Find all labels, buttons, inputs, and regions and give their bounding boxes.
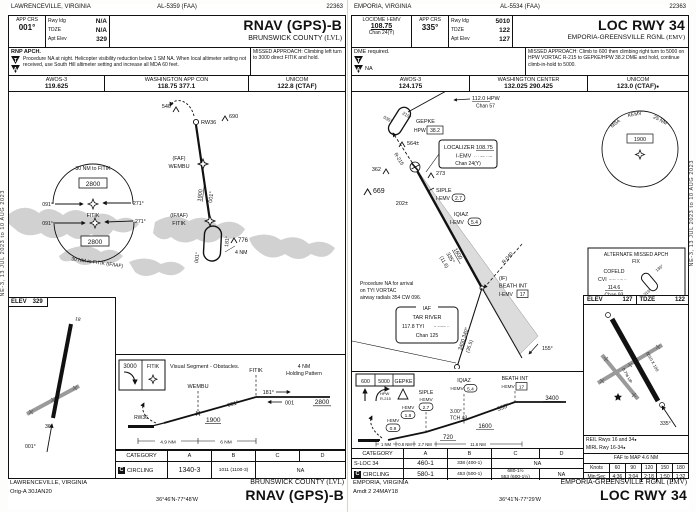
- profile-1600: 1600: [478, 424, 492, 430]
- wembu-waypoint-icon: [198, 159, 208, 169]
- circling-label: CIRCLING: [127, 468, 153, 474]
- tar-river-name: TAR RIVER: [413, 315, 442, 321]
- runway-data-box: Rwy ldg5010 TDZE122 Apt Elev127: [449, 16, 513, 47]
- msa-label-2: KEMV: [627, 110, 643, 118]
- footer-amendment: Orig-A 30JAN20: [10, 489, 52, 495]
- beath-name: BEATH INT: [499, 284, 528, 290]
- glideslope-angle: 3.00°: [450, 409, 462, 415]
- footer-title: RNAV (GPS)-B: [245, 487, 344, 503]
- al-number: AL-5534 (FAA): [465, 4, 576, 13]
- airport-name: BRUNSWICK COUNTY: [248, 35, 322, 42]
- footer-title: LOC RWY 34: [600, 487, 687, 503]
- center-freq: 132.025 290.425: [470, 83, 587, 90]
- appcon-freq: 118.75 377.1: [105, 83, 248, 90]
- briefing-strip: APP CRS 001° Rwy ldgN/A TDZEN/A Apt Elev…: [8, 15, 346, 95]
- feeder-course: [457, 288, 482, 367]
- svg-text:A: A: [357, 67, 361, 73]
- beath-if-tag: (IF): [499, 276, 507, 282]
- cvi-ident: CVI: [598, 277, 607, 283]
- tar-river-fix-icon: [455, 365, 460, 370]
- profile-beath-dme: 17: [519, 385, 525, 391]
- airport-sketch: ELEV 329 18 36 001°: [8, 297, 116, 479]
- taa-top-waypoint-icon: [88, 199, 98, 209]
- tdze-label: TDZE: [48, 26, 61, 35]
- if-iaf-tag: (IF/IAF): [170, 213, 188, 219]
- msa-altitude: 1900: [634, 137, 646, 143]
- profile-siple: SIPLE: [419, 390, 434, 396]
- msa-waypoint-icon: [636, 150, 645, 159]
- profile-siple-dme: 2.7: [423, 405, 430, 411]
- app-crs-value: 335°: [414, 23, 446, 32]
- missed-approach-text: MISSED APPROACH: Climb to 600 then climb…: [526, 48, 688, 75]
- gepke-name: GEPKE: [416, 119, 435, 125]
- reil-note: REIL Rwys 16 and 34: [586, 437, 634, 443]
- profile-hold-inbound: 001: [285, 401, 294, 407]
- knots-60: 60: [610, 464, 626, 473]
- rwy-ldg-label: Rwy ldg: [48, 17, 66, 26]
- outbound-course: 155°: [542, 346, 553, 352]
- apt-elev-value: 329: [96, 35, 107, 44]
- fix-09-dme: 0.9: [390, 426, 397, 432]
- final-approach-course: [196, 125, 210, 221]
- unicom-freq: 122.8 (CTAF): [249, 83, 345, 90]
- footer-airport-id: (EMV): [667, 478, 687, 486]
- minima-category-header: CATEGORY: [116, 451, 168, 461]
- missed-step-2: 5000: [378, 379, 390, 385]
- dist-4: 11.6 NM: [470, 442, 486, 447]
- feeder-labels: 3400 340° (35.5): [457, 327, 478, 354]
- hpw-chan: Chan 57: [476, 104, 495, 110]
- loc-freq: 108.75: [354, 23, 409, 30]
- edition-note-left: NE-3, 13 JUL 2023 to 10 AUG 2023: [0, 190, 6, 296]
- profile-missed-curve: [371, 416, 382, 438]
- runway-18-36: [53, 324, 71, 418]
- distance-if-faf: 6 NM: [220, 440, 231, 446]
- obstacle-776: 776: [238, 238, 249, 244]
- r215-label: R-215: [392, 152, 404, 167]
- profile-beath: BEATH INT: [502, 376, 530, 382]
- knots-label: Knots: [584, 464, 610, 473]
- loc-dme-box: LOC/DME I-EMV 108.75 Chan 24(Y): [352, 16, 412, 47]
- taa-bottom-bearing-left: 091°: [42, 221, 53, 227]
- profile-view: 600 5000 GEPKE HPW R-215 SIPLE I-EMV 2.7…: [351, 371, 584, 449]
- elev-label: ELEV: [11, 299, 27, 305]
- tdze-value: 122: [499, 26, 510, 35]
- msa-label-1: MSA: [610, 118, 623, 130]
- minima-cat-d: D: [300, 451, 345, 461]
- faf-to-map: FAF to MAP 4.6 NM: [584, 454, 688, 464]
- approach-plate-page: NE-3, 13 JUL 2023 to 10 AUG 2023 NE-3, 1…: [0, 0, 696, 512]
- profile-course: 335°: [497, 403, 511, 413]
- beacon-icon: [614, 393, 622, 401]
- cofeld-name: COFELD: [603, 269, 624, 275]
- title-block: RNAV (GPS)-B BRUNSWICK COUNTY (LVL): [110, 16, 345, 47]
- tyi-chan: Chan 125: [416, 333, 439, 339]
- elev-value: 127: [622, 297, 632, 303]
- tyi-morse: − −·−− ··: [434, 324, 450, 329]
- app-crs-box: APP CRS 001°: [9, 16, 46, 47]
- chart-loc-rwy-34: EMPORIA, VIRGINIA AL-5534 (FAA) 22363 LO…: [351, 4, 689, 510]
- procedure-title: RNAV (GPS)-B: [110, 17, 342, 33]
- sloc-hat: 338 (400-1): [448, 459, 492, 468]
- profile-iqiaz-dme: 5.4: [467, 387, 474, 393]
- obstacle-362-icon: [383, 169, 389, 174]
- sketch-final-course: 001°: [25, 444, 36, 450]
- localizer-chan: Chan 24(Y): [455, 161, 481, 167]
- arrival-note-1: Procedure NA for arrival: [360, 281, 413, 287]
- footer-airport-id: (LVL): [326, 478, 344, 486]
- tdze-value: N/A: [96, 26, 107, 35]
- tdze-label: TDZE: [451, 26, 464, 35]
- tch-value: TCH 43: [450, 416, 467, 422]
- circling-label: CIRCLING: [363, 472, 389, 478]
- sketch-final-course: 335°: [660, 421, 671, 427]
- rwy-ldg-value: N/A: [96, 17, 107, 26]
- awos-freq: 119.625: [9, 83, 104, 90]
- minima-cat-b: B: [448, 449, 492, 458]
- footer-amendment: Amdt 2 24MAY18: [353, 489, 398, 495]
- obstacle-540-icon: [173, 107, 179, 112]
- alternate-minimums-icon: A: [11, 65, 20, 73]
- title-block: LOC RWY 34 EMPORIA-GREENSVILLE RGNL (EMV…: [513, 16, 688, 47]
- apt-elev-label: Apt Elev: [451, 35, 470, 44]
- dme-required-note: DME required.: [354, 49, 523, 55]
- obstacle-273: 273: [436, 171, 445, 177]
- footer-city: EMPORIA, VIRGINIA: [353, 480, 408, 486]
- profile-iqiaz: IQIAZ: [457, 378, 471, 384]
- circling-cd: NA: [256, 462, 345, 479]
- obstacle-690-icon: [222, 116, 228, 121]
- rw36-label: RW36: [201, 120, 216, 126]
- tdze-value: 122: [675, 297, 685, 303]
- tdze-label: TDZE: [640, 297, 656, 303]
- hpw-freq: 112.0 HPW: [472, 96, 501, 102]
- taa-top-bearing-left: 091°: [42, 202, 53, 208]
- hold-outbound-course: 181°: [224, 236, 231, 247]
- siple-name: SIPLE: [436, 188, 452, 194]
- iaf-tag: IAF: [423, 306, 431, 312]
- loc-chan: Chan 24(Y): [354, 30, 409, 36]
- profile-720: 720: [443, 435, 454, 441]
- airport-id: (LVL): [324, 34, 342, 42]
- chart-code: 22363: [232, 4, 343, 13]
- cvi-freq: 114.6: [608, 285, 621, 291]
- airport-name: EMPORIA-GREENSVILLE RGNL: [567, 34, 664, 41]
- chart-city: EMPORIA, VIRGINIA: [354, 4, 465, 13]
- chart-rnav-gps-b: LAWRENCEVILLE, VIRGINIA AL-5359 (FAA) 22…: [8, 4, 346, 510]
- alternate-minimums-icon: A: [354, 65, 363, 73]
- profile-wembu-label: WEMBU: [187, 384, 208, 390]
- page-divider: [347, 0, 348, 512]
- elev-label: ELEV: [587, 297, 603, 303]
- minima-cat-b: B: [212, 451, 256, 461]
- circling-hat-ab: 1011 (1100-3): [212, 462, 256, 479]
- descent-line-2: [426, 420, 465, 432]
- apt-elev-value: 127: [499, 35, 510, 44]
- sketch-graphics: 5010 X 100 0.7% UP 335°: [584, 305, 687, 431]
- fix-18-id: I-EMV: [402, 405, 415, 410]
- missed-left-turn-icon: [124, 372, 135, 384]
- lighting-timing-box: REIL Rwys 16 and 34● MIRL Rwy 16-34● FAF…: [583, 435, 689, 479]
- missed-step-1: 600: [361, 379, 370, 385]
- beath-dme: 17: [520, 292, 526, 298]
- knots-150: 150: [657, 464, 673, 473]
- obstacle-669-icon: [364, 189, 371, 195]
- chart-city: LAWRENCEVILLE, VIRGINIA: [11, 4, 122, 13]
- notes-box: RNP APCH. T A Procedure NA at night. Hel…: [9, 48, 251, 75]
- chart-top-line: EMPORIA, VIRGINIA AL-5534 (FAA) 22363: [351, 4, 689, 13]
- obstacle-776-icon: [231, 238, 237, 243]
- profile-hold-altitude: 2800: [315, 399, 330, 406]
- reil-pcl-icon: ●: [634, 437, 636, 442]
- hold-length-note: 4 NM: [298, 364, 310, 370]
- airport-id: (EMV): [666, 34, 685, 41]
- obstacle-564: 564±: [407, 141, 419, 147]
- missed-radial: R-215: [380, 396, 392, 401]
- hold-pattern-note: Holding Pattern: [286, 371, 322, 377]
- obstacle-362: 362: [372, 167, 381, 173]
- runway-data-box: Rwy ldgN/A TDZEN/A Apt Elev329: [46, 16, 110, 47]
- takeoff-minimums-icon: T: [11, 56, 20, 64]
- sketch-graphics: 18 36 001°: [9, 298, 114, 476]
- elev-value: 329: [33, 299, 43, 305]
- profile-siple-id: I-EMV: [419, 397, 433, 403]
- profile-runway: [358, 439, 380, 442]
- takeoff-minimums-icon: T: [354, 56, 363, 64]
- missed-fix-name: FITIK: [147, 364, 160, 370]
- alternate-na: NA: [365, 66, 373, 72]
- taa-fix-name: FITIK: [87, 213, 100, 219]
- iqiaz-name: IQIAZ: [454, 212, 469, 218]
- runway-18-label: 18: [75, 316, 82, 323]
- localizer-course: [415, 167, 482, 288]
- minima-cat-d: D: [540, 449, 583, 458]
- localizer-morse: ·· · −− ···−: [474, 154, 493, 159]
- circling-row-label: C CIRCLING: [116, 462, 168, 479]
- mirl-pcl-icon: ●: [623, 445, 625, 450]
- iqiaz-dme: 5.4: [471, 220, 478, 226]
- knots-90: 90: [626, 464, 642, 473]
- app-crs-box: APP CRS 335°: [412, 16, 449, 47]
- airport-sketch: ELEV127 TDZE122 5010 X 100 0.7% UP 335°: [583, 295, 689, 436]
- profile-graphics: 600 5000 GEPKE HPW R-215 SIPLE I-EMV 2.7…: [352, 372, 582, 447]
- circling-icon: C: [354, 471, 361, 478]
- hold-inbound-course: 001°: [194, 252, 201, 263]
- taa-bottom-bearing-right: 271°: [135, 219, 146, 225]
- profile-altitude-1900: 1900: [206, 417, 221, 424]
- amaf-title-2: FIX: [632, 259, 640, 265]
- gepke-vor: HPW: [414, 128, 426, 134]
- cvi-morse: −·−· ···− ··: [609, 278, 627, 282]
- sloc-cd: NA: [492, 459, 583, 468]
- profile-hold-outbound: 181°: [263, 390, 274, 396]
- dist-1: 1 NM: [381, 442, 392, 447]
- rw36-fix-icon: [193, 119, 198, 124]
- profile-runway: [128, 425, 154, 428]
- visual-segment-note: Visual Segment - Obstacles.: [170, 364, 240, 370]
- rwy-ldg-value: 5010: [496, 17, 510, 26]
- minima-cat-a: A: [168, 451, 212, 461]
- minima-category-header: CATEGORY: [352, 449, 404, 458]
- circling-mda-ab: 1340-3: [168, 462, 212, 479]
- localizer-label: LOCALIZER: [444, 145, 475, 151]
- chart-footer: LAWRENCEVILLE, VIRGINIA Orig-A 30JAN20 3…: [8, 478, 346, 508]
- missed-fix-icon: [149, 375, 157, 383]
- apt-elev-label: Apt Elev: [48, 35, 67, 44]
- fix-09-id: I-EMV: [387, 418, 400, 423]
- minima-cat-c: C: [256, 451, 300, 461]
- airport-symbol: [410, 162, 420, 172]
- runway-dimensions: 5010 X 100: [645, 351, 660, 373]
- obstacle-540: 540: [162, 104, 171, 110]
- arrival-note-2: on TYI VORTAC: [360, 288, 397, 294]
- chart-code: 22363: [575, 4, 686, 13]
- dist-2: 0.8 NM: [398, 442, 412, 447]
- r040-label: R-040: [501, 251, 515, 265]
- segment-course: 001°: [208, 191, 215, 203]
- minima-table: CATEGORY A B C D S-LOC 34 460-1 338 (400…: [351, 448, 584, 479]
- sketch-elev-tag: ELEV 329: [9, 298, 48, 307]
- procedure-title: LOC RWY 34: [513, 17, 685, 33]
- taa-top-bearing-right: 271°: [133, 201, 144, 207]
- taa-bottom-altitude: 2800: [88, 239, 103, 246]
- notes-box: DME required. T A NA: [352, 48, 526, 75]
- briefing-strip: LOC/DME I-EMV 108.75 Chan 24(Y) APP CRS …: [351, 15, 689, 95]
- arrival-note-3: airway radials 354 CW 096.: [360, 295, 421, 301]
- sloc-row-label: S-LOC 34: [352, 459, 404, 468]
- sketch-header: ELEV127 TDZE122: [584, 296, 688, 305]
- hold-leg-length: 4 NM: [235, 250, 247, 256]
- edition-note-right: NE-3, 13 JUL 2023 to 10 AUG 2023: [689, 160, 695, 266]
- minima-table: CATEGORY A B C D C CIRCLING 1340-3 1011 …: [115, 450, 346, 479]
- profile-beath-id: I-EMV: [501, 384, 515, 390]
- procedure-notes: Procedure NA at night. Helicopter visibi…: [23, 56, 248, 73]
- missed-approach-text: MISSED APPROACH: Climbing left turn to 3…: [251, 48, 345, 75]
- if-iaf-name: FITIK: [172, 221, 186, 227]
- chart-footer: EMPORIA, VIRGINIA Amdt 2 24MAY18 36°41'N…: [351, 478, 689, 508]
- taa-top-altitude: 2800: [86, 181, 101, 188]
- mirl-note: MIRL Rwy 16-34: [586, 445, 623, 451]
- siple-dme: 2.7: [455, 196, 462, 202]
- rnp-apch-label: RNP APCH.: [11, 49, 248, 55]
- obstacle-564-icon: [399, 142, 405, 147]
- gepke-dme: 38.2: [430, 128, 440, 134]
- descent-line-3: [388, 432, 426, 440]
- minima-cat-c: C: [492, 449, 540, 458]
- localizer-ident: I-EMV: [456, 154, 472, 160]
- beath-ident: I-EMV: [499, 292, 514, 298]
- profile-fitik-label: FITIK: [249, 368, 263, 374]
- awos-freq: 124.175: [352, 83, 469, 90]
- dist-3: 2.7 NM: [418, 442, 432, 447]
- faf-tag: (FAF): [173, 156, 186, 162]
- reil-symbol-16: [606, 313, 611, 318]
- app-crs-value: 001°: [11, 23, 43, 32]
- fix-18-dme: 1.8: [405, 413, 412, 419]
- chart-top-line: LAWRENCEVILLE, VIRGINIA AL-5359 (FAA) 22…: [8, 4, 346, 13]
- al-number: AL-5359 (FAA): [122, 4, 233, 13]
- tyi-freq: 117.8 TYI: [402, 324, 424, 330]
- sloc-mda: 460-1: [404, 459, 448, 468]
- missed-hold-icon: [398, 389, 408, 399]
- missed-climb-altitude: 3000: [123, 364, 137, 370]
- obstacle-690: 690: [229, 114, 238, 120]
- profile-course: 001°: [227, 400, 240, 409]
- missed-approach-track: [170, 101, 194, 116]
- taa-top-arc-label: 30 NM to FITIK: [75, 166, 111, 172]
- knots-120: 120: [642, 464, 658, 473]
- distance-faf-map: 4.9 NM: [160, 440, 175, 446]
- svg-text:A: A: [14, 67, 18, 73]
- amaf-title-1: ALTERNATE MISSED APCH: [604, 252, 669, 258]
- msa-label-3: 25 NM: [652, 114, 668, 126]
- faf-name: WEMBU: [168, 164, 189, 170]
- profile-3400: 3400: [545, 396, 559, 402]
- feeder-distance: (35.5): [465, 339, 475, 354]
- pcl-icon: ●: [656, 84, 659, 90]
- unicom-freq: 123.0 (CTAF): [617, 83, 656, 90]
- obstacle-669: 669: [373, 188, 385, 195]
- profile-view: 3000 FITIK Visual Segment - Obstacles. F…: [115, 354, 346, 450]
- minima-cat-a: A: [404, 449, 448, 458]
- knots-180: 180: [673, 464, 688, 473]
- runway-36-label: 36: [45, 424, 51, 430]
- footer-airport: EMPORIA-GREENSVILLE RGNL: [560, 479, 664, 486]
- missed-step-3: GEPKE: [395, 379, 413, 385]
- obstacle-273-icon: [428, 173, 434, 178]
- rwy-ldg-label: Rwy ldg: [451, 17, 469, 26]
- siple-ident: I-EMV: [436, 196, 451, 202]
- obstacle-202: 202±: [396, 201, 408, 207]
- localizer-freq: 108.75: [476, 145, 493, 151]
- profile-rw36-label: RW36: [134, 415, 148, 421]
- footer-city: LAWRENCEVILLE, VIRGINIA: [10, 480, 87, 486]
- profile-iqiaz-id: I-EMV: [450, 386, 464, 392]
- circling-icon: C: [118, 467, 125, 474]
- iqiaz-ident: I-EMV: [450, 220, 465, 226]
- footer-airport: BRUNSWICK COUNTY: [250, 479, 324, 486]
- profile-graphics: 3000 FITIK Visual Segment - Obstacles. F…: [116, 355, 344, 448]
